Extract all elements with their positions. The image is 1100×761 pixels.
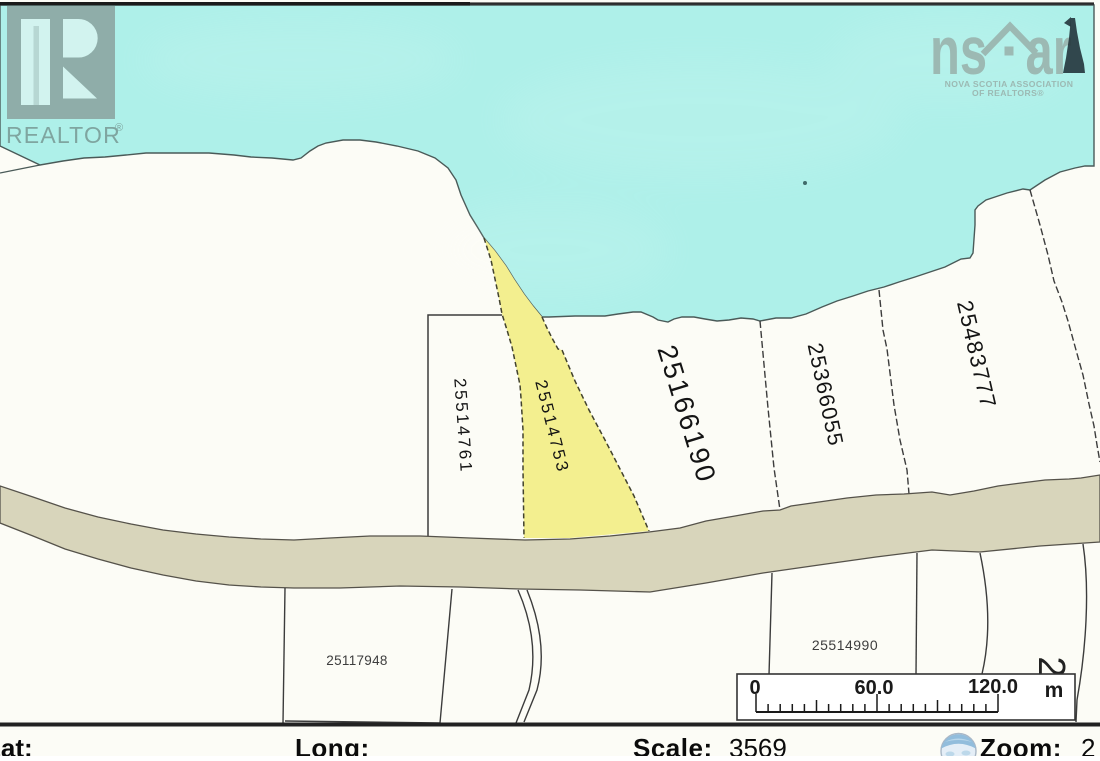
svg-text:Scale:: Scale:: [633, 733, 713, 756]
svg-text:0: 0: [749, 677, 760, 699]
svg-text:Lat:: Lat:: [0, 733, 33, 756]
svg-text:60.0: 60.0: [855, 677, 894, 699]
svg-text:2: 2: [1081, 733, 1095, 756]
svg-text:Zoom:: Zoom:: [980, 733, 1062, 756]
svg-text:Long:: Long:: [295, 733, 370, 756]
svg-text:®: ®: [115, 122, 123, 134]
svg-text:m: m: [1045, 679, 1064, 702]
svg-text:REALTOR: REALTOR: [6, 122, 121, 148]
svg-text:3569: 3569: [729, 733, 787, 756]
svg-text:25117948: 25117948: [326, 653, 387, 668]
svg-text:OF REALTORS®: OF REALTORS®: [972, 88, 1044, 98]
svg-text:120.0: 120.0: [968, 676, 1018, 698]
svg-text:ar: ar: [1025, 12, 1071, 89]
svg-text:ns: ns: [930, 12, 987, 89]
svg-text:25514990: 25514990: [812, 637, 878, 653]
